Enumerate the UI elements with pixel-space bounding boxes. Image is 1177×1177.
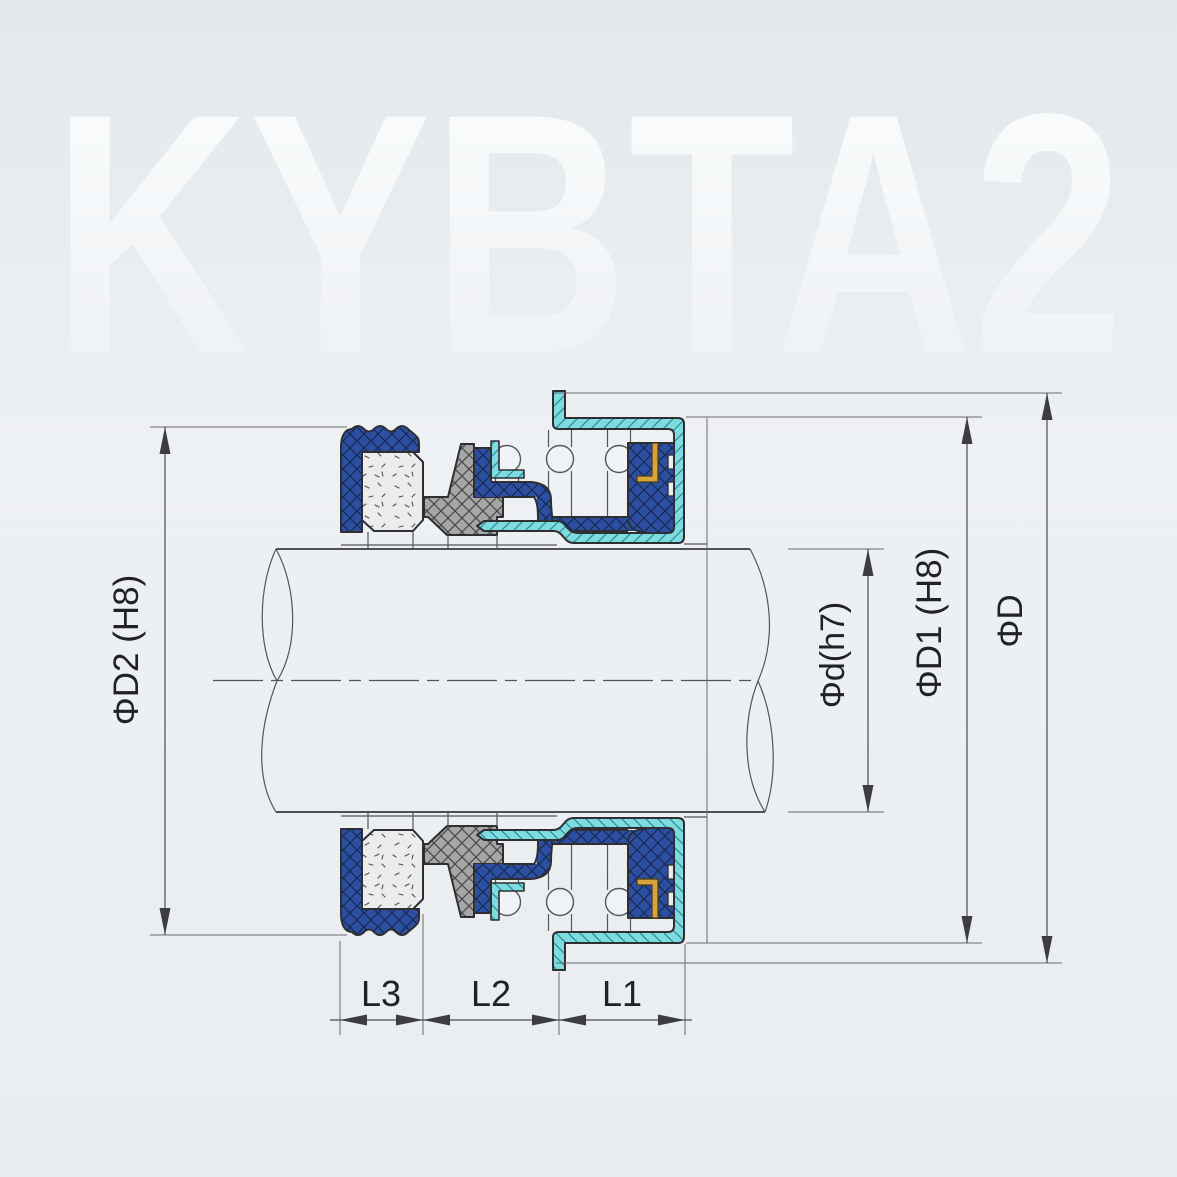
dim-D-label: ΦD [991,594,1030,647]
dim-d-label: Φd(h7) [814,602,852,709]
seal-cross-section-diagram: KYBTA2 ΦD2 (H8) Φ [0,0,1177,1177]
dim-d1-label: ΦD1 (H8) [910,548,949,698]
watermark-text: KYBTA2 [52,43,1124,425]
dim-l2-label: L2 [471,973,511,1014]
mechanical-seal-drawing-page: KYBTA2 ΦD2 (H8) Φ [0,0,1177,1177]
dim-d2-label: ΦD2 (H8) [107,575,146,725]
dim-l1-label: L1 [602,973,642,1014]
dim-l3-label: L3 [361,973,401,1014]
